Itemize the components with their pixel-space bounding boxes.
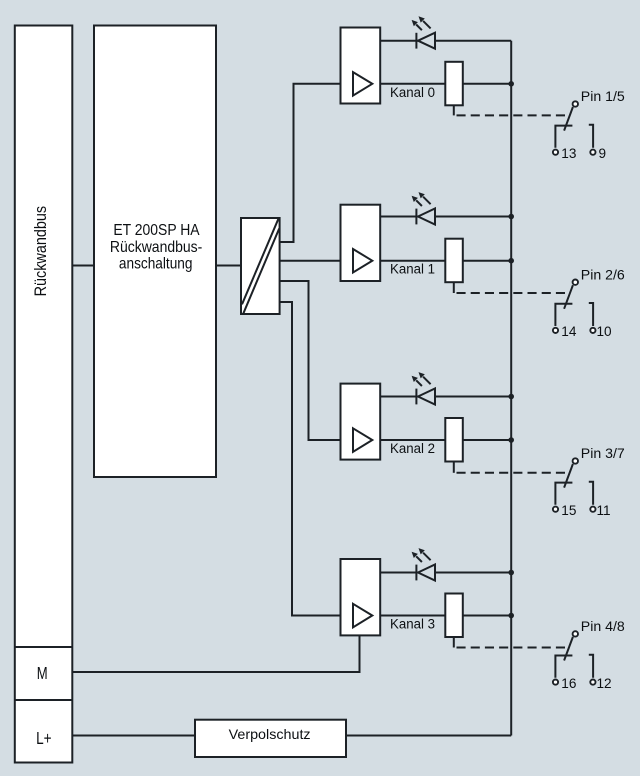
svg-text:10: 10 — [597, 324, 613, 339]
svg-text:Rückwandbus: Rückwandbus — [31, 206, 50, 297]
svg-text:L+: L+ — [36, 728, 52, 748]
svg-text:Kanal 3: Kanal 3 — [390, 617, 435, 632]
svg-text:11: 11 — [597, 503, 611, 518]
svg-text:anschaltung: anschaltung — [119, 256, 193, 273]
svg-text:15: 15 — [561, 503, 576, 518]
svg-text:ET 200SP HA: ET 200SP HA — [113, 222, 199, 239]
svg-text:M: M — [37, 663, 48, 683]
svg-text:9: 9 — [599, 146, 607, 161]
svg-text:12: 12 — [597, 676, 612, 691]
svg-text:Kanal 1: Kanal 1 — [390, 262, 435, 277]
svg-text:Verpolschutz: Verpolschutz — [229, 727, 311, 742]
svg-text:Pin 4/8: Pin 4/8 — [581, 619, 625, 634]
svg-text:Pin 3/7: Pin 3/7 — [581, 446, 625, 461]
svg-text:Pin 2/6: Pin 2/6 — [581, 267, 625, 282]
svg-text:13: 13 — [561, 146, 576, 161]
svg-text:14: 14 — [561, 324, 577, 339]
svg-text:Kanal 2: Kanal 2 — [390, 441, 435, 456]
svg-text:Pin 1/5: Pin 1/5 — [581, 89, 625, 104]
svg-text:16: 16 — [561, 676, 576, 691]
svg-text:Kanal 0: Kanal 0 — [390, 85, 435, 100]
svg-text:Rückwandbus-: Rückwandbus- — [110, 239, 202, 256]
